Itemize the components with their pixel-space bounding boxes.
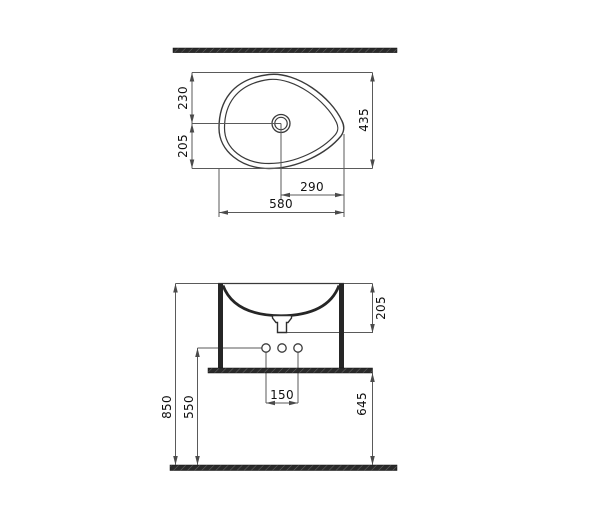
dim-label-drain-to-right-edge: 290: [300, 181, 324, 193]
faucet-holes: [262, 344, 302, 352]
dim-label-rim-to-outlet: 205: [375, 296, 387, 320]
drain-outlet: [273, 316, 292, 333]
technical-drawing-page: 230 205 435 290 580 850 550 645 205 150: [0, 0, 600, 518]
basin-bowl-curve: [223, 286, 339, 316]
top-view: [173, 48, 397, 217]
dim-label-overall-width: 580: [269, 198, 293, 210]
dim-label-worktop-underside-height: 645: [356, 392, 368, 416]
basin-right-wall: [339, 284, 344, 369]
faucet-hole-center: [278, 344, 286, 352]
dim-label-drain-from-back: 230: [177, 86, 189, 110]
faucet-hole-left: [262, 344, 270, 352]
floor-bar: [170, 465, 397, 471]
dim-label-drain-from-front: 205: [177, 134, 189, 158]
countertop-bar: [208, 368, 373, 373]
front-view: [170, 284, 397, 471]
wall-section-bar: [173, 48, 397, 53]
dim-label-overall-depth: 435: [358, 108, 370, 132]
dim-label-faucet-holes-spacing: 150: [270, 389, 294, 401]
basin-left-wall: [218, 284, 223, 369]
technical-drawing-canvas: [0, 0, 600, 518]
faucet-hole-right: [294, 344, 302, 352]
dim-label-overall-height: 850: [161, 395, 173, 419]
dim-label-faucet-holes-height: 550: [183, 395, 195, 419]
